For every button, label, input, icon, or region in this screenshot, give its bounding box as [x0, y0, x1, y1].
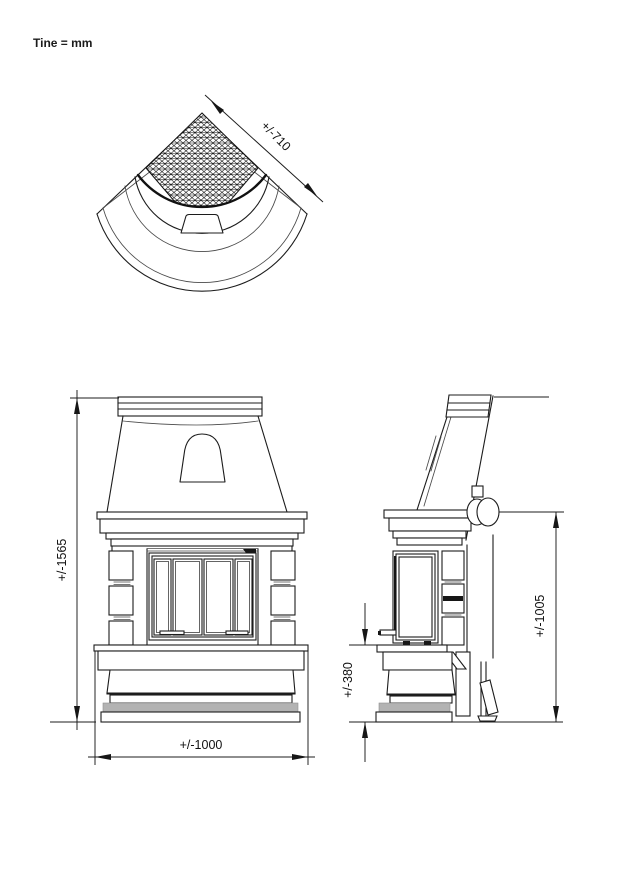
arrowhead-up — [362, 722, 368, 738]
arrowhead-up-left — [211, 101, 224, 114]
arrowhead-up — [553, 512, 559, 528]
leg-foot — [478, 716, 497, 721]
top-view: +/-710 — [97, 95, 323, 291]
flue-outlet-circle — [477, 498, 499, 526]
lintel-line — [147, 549, 258, 552]
chimney-cap-side — [446, 395, 491, 417]
hearth-base-side — [376, 645, 466, 722]
hood-vent-opening — [180, 434, 225, 482]
hearth-base-front — [94, 645, 308, 722]
flue-stub — [472, 486, 483, 497]
left-column — [109, 547, 147, 645]
door-assembly-front — [149, 553, 256, 640]
arrowhead-up — [74, 398, 80, 414]
arrowhead-right — [292, 754, 308, 760]
dimension-side-hearth-height: +/-380 — [341, 603, 379, 762]
dim-label-side-hearth-height: +/-380 — [341, 662, 355, 698]
leg-brace — [480, 680, 498, 715]
column-shadow-joint — [443, 596, 463, 601]
hood-front — [107, 416, 287, 512]
chimney-cap-front — [118, 397, 262, 416]
column-side — [442, 551, 464, 645]
hearth-shadow-band — [103, 703, 298, 712]
mantel-shelf-side — [384, 510, 478, 545]
door-side — [378, 551, 438, 645]
door-foot-b — [424, 641, 431, 645]
front-view: +/-1565 +/-1000 — [50, 390, 315, 765]
door-foot-a — [403, 641, 410, 645]
fireplace-technical-drawing: +/-710 — [0, 0, 627, 891]
dim-label-side-outlet-height: +/-1005 — [533, 595, 547, 638]
door-handle-right — [226, 631, 248, 635]
mantel-shelf-front — [97, 512, 307, 546]
support-leg — [478, 662, 498, 721]
dim-label-front-height: +/-1565 — [55, 539, 69, 582]
arrowhead-down — [362, 629, 368, 645]
vent-opening-top — [181, 215, 223, 234]
door-handle-side — [380, 630, 396, 635]
side-view: +/-380 +/-1005 — [341, 395, 564, 762]
door-handle-left — [160, 631, 184, 635]
arrowhead-down-right — [304, 183, 317, 196]
dim-label-front-width: +/-1000 — [180, 738, 223, 752]
arrowhead-down — [74, 706, 80, 722]
door-panel-3 — [204, 559, 233, 635]
hearth-shadow-band-side — [379, 703, 450, 712]
dimension-side-outlet-height: +/-1005 — [499, 512, 564, 722]
right-column — [258, 547, 295, 645]
drawing-sheet: Tine = mm — [0, 0, 627, 891]
arrowhead-left — [95, 754, 111, 760]
door-panel-2 — [173, 559, 202, 635]
arrowhead-down — [553, 706, 559, 722]
hatched-chimney-panel — [146, 113, 258, 207]
